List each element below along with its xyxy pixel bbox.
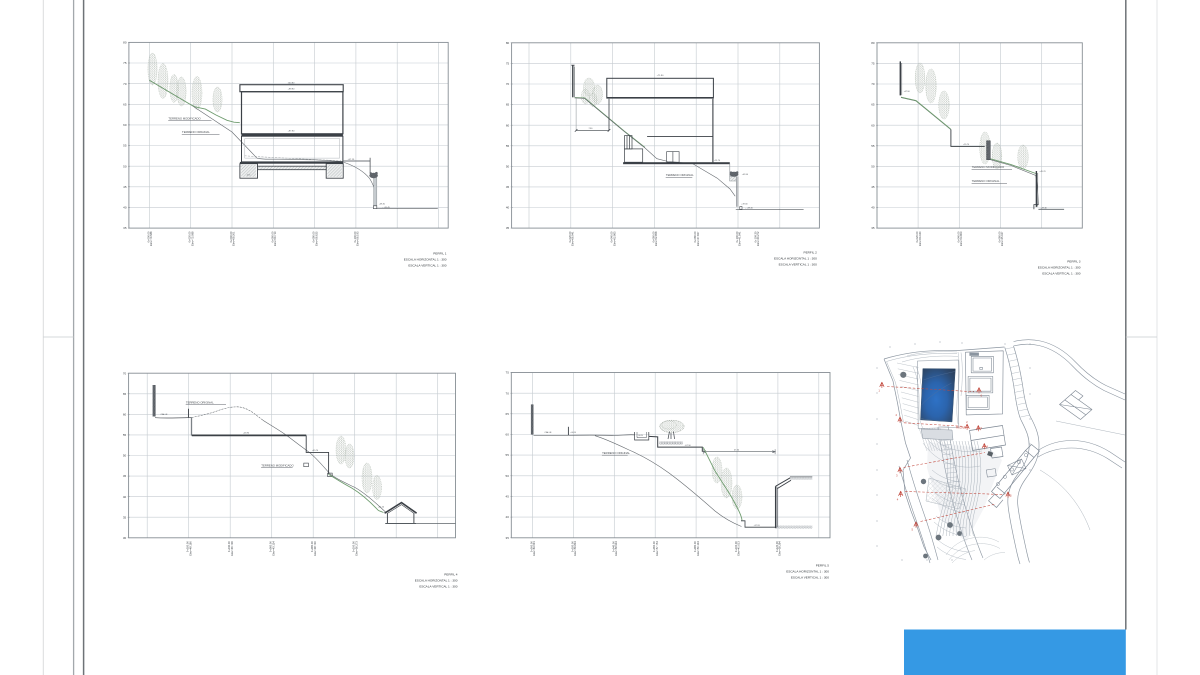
- svg-text:40: 40: [506, 206, 510, 210]
- svg-text:Elev=64.040: Elev=64.040: [918, 231, 922, 246]
- svg-text:Elev=58.934: Elev=58.934: [614, 541, 618, 556]
- svg-text:60: 60: [506, 123, 510, 127]
- svg-text:Elev=41.013: Elev=41.013: [737, 541, 741, 556]
- svg-text:ESCALA VERTICAL 1 : 300: ESCALA VERTICAL 1 : 300: [1042, 272, 1080, 276]
- svg-text:60: 60: [123, 412, 127, 416]
- svg-text:75: 75: [871, 62, 875, 66]
- svg-text:60: 60: [871, 123, 875, 127]
- svg-text:70: 70: [123, 371, 127, 375]
- svg-text:Elev=59.713: Elev=59.713: [273, 231, 277, 246]
- svg-text:70: 70: [123, 82, 127, 86]
- svg-text:45: 45: [506, 185, 510, 189]
- svg-text:50: 50: [123, 164, 127, 168]
- svg-text:Elev=41.841: Elev=41.841: [738, 231, 742, 246]
- svg-text:80: 80: [506, 41, 510, 45]
- svg-text:Elev=43.154: Elev=43.154: [271, 541, 275, 556]
- svg-text:65: 65: [871, 103, 875, 107]
- svg-text:+51.70: +51.70: [714, 160, 721, 162]
- svg-text:Elev=53.803: Elev=53.803: [959, 231, 963, 246]
- svg-text:+48.90: +48.90: [243, 433, 250, 435]
- svg-text:-58.20: -58.20: [638, 435, 643, 437]
- svg-text:55: 55: [506, 453, 510, 457]
- svg-text:TERRENO MODIFICADO: TERRENO MODIFICADO: [972, 165, 1005, 169]
- svg-text:Elev=40.272: Elev=40.272: [756, 231, 760, 246]
- svg-text:TERRENO MODIFICADO: TERRENO MODIFICADO: [168, 116, 201, 120]
- svg-text:Elev=62.863: Elev=62.863: [612, 231, 616, 246]
- svg-text:+97.90: +97.90: [288, 131, 296, 133]
- svg-text:65: 65: [123, 392, 127, 396]
- svg-text:PERFIL 5: PERFIL 5: [816, 563, 830, 567]
- svg-text:+37.93: +37.93: [754, 525, 761, 527]
- svg-text:35: 35: [123, 226, 127, 230]
- svg-text:Elev=50.134: Elev=50.134: [696, 541, 700, 556]
- svg-text:Elev=68.201: Elev=68.201: [232, 231, 236, 246]
- svg-text:CALLE: CALLE: [161, 413, 168, 416]
- svg-text:35: 35: [871, 226, 875, 230]
- svg-text:100.80: 100.80: [288, 82, 295, 84]
- svg-text:Elev=57.754: Elev=57.754: [655, 541, 659, 556]
- svg-text:+99.90: +99.90: [288, 88, 296, 90]
- svg-text:+57.50: +57.50: [685, 445, 692, 447]
- svg-text:PISCINA: PISCINA: [956, 426, 966, 429]
- svg-text:PERFIL 4: PERFIL 4: [444, 573, 458, 577]
- svg-text:TERRENO MODIFICADO: TERRENO MODIFICADO: [261, 463, 294, 467]
- svg-text:+41.20: +41.20: [378, 506, 385, 508]
- svg-text:35: 35: [123, 515, 127, 519]
- svg-text:60: 60: [506, 433, 510, 437]
- svg-text:45: 45: [506, 495, 510, 499]
- svg-text:ESCALA VERTICAL 1 : 300: ESCALA VERTICAL 1 : 300: [791, 575, 829, 579]
- svg-text:Elev=38.284: Elev=38.284: [778, 541, 782, 556]
- svg-text:Elev=56.193: Elev=56.193: [356, 231, 360, 246]
- svg-text:ESCALA HORIZONTAL 1 : 300: ESCALA HORIZONTAL 1 : 300: [774, 257, 817, 261]
- svg-text:45: 45: [123, 474, 127, 478]
- svg-text:65: 65: [506, 103, 510, 107]
- svg-text:45: 45: [123, 185, 127, 189]
- svg-text:70: 70: [506, 82, 510, 86]
- svg-text:+57.15: +57.15: [348, 159, 356, 161]
- svg-text:Elev=63.591: Elev=63.591: [532, 541, 536, 556]
- svg-text:Elev=38.730: Elev=38.730: [313, 541, 317, 556]
- svg-text:80: 80: [871, 41, 875, 45]
- svg-text:Elev=79.588: Elev=79.588: [149, 231, 153, 246]
- svg-text:70: 70: [871, 82, 875, 86]
- svg-text:+39.30: +39.30: [741, 204, 748, 206]
- svg-text:65: 65: [123, 102, 127, 106]
- svg-text:50: 50: [506, 164, 510, 168]
- svg-text:CALLE: CALLE: [545, 431, 552, 434]
- svg-text:40: 40: [123, 206, 127, 210]
- svg-text:+45.70: +45.70: [312, 450, 319, 452]
- svg-text:50: 50: [123, 454, 127, 458]
- svg-text:80: 80: [123, 41, 127, 45]
- svg-text:TERRENO ORIGINAL: TERRENO ORIGINAL: [182, 130, 210, 134]
- svg-text:50: 50: [506, 474, 510, 478]
- svg-text:Elev=59.834: Elev=59.834: [573, 541, 577, 556]
- svg-text:40: 40: [871, 206, 875, 210]
- svg-text:30: 30: [123, 536, 127, 540]
- svg-text:+55.70: +55.70: [963, 144, 970, 146]
- svg-text:ESCALA VERTICAL 1 : 300: ESCALA VERTICAL 1 : 300: [419, 585, 457, 589]
- svg-text:+39.30: +39.30: [379, 203, 386, 205]
- svg-text:Elev=48.160: Elev=48.160: [188, 541, 192, 556]
- svg-text:55: 55: [506, 144, 510, 148]
- svg-text:Elev=46.736: Elev=46.736: [230, 541, 234, 556]
- svg-text:70: 70: [506, 391, 510, 395]
- svg-text:50: 50: [871, 164, 875, 168]
- svg-text:4.75: 4.75: [247, 174, 251, 176]
- svg-text:+71.90: +71.90: [657, 75, 665, 77]
- svg-text:60: 60: [123, 123, 127, 127]
- svg-text:75: 75: [506, 371, 510, 375]
- svg-text:PERFIL 1: PERFIL 1: [433, 252, 447, 256]
- svg-text:ESCALA HORIZONTAL 1 : 300: ESCALA HORIZONTAL 1 : 300: [1038, 266, 1081, 270]
- svg-text:Elev=36.273: Elev=36.273: [354, 541, 358, 556]
- svg-text:ESCALA VERTICAL 1 : 300: ESCALA VERTICAL 1 : 300: [408, 264, 446, 268]
- svg-text:40: 40: [123, 495, 127, 499]
- svg-text:PERFIL 2: PERFIL 2: [804, 251, 818, 255]
- svg-text:ESCALA HORIZONTAL 1 : 300: ESCALA HORIZONTAL 1 : 300: [415, 579, 458, 583]
- svg-text:+60.10: +60.10: [570, 432, 576, 434]
- svg-text:40: 40: [506, 515, 510, 519]
- svg-text:55: 55: [123, 433, 127, 437]
- svg-text:+49.90: +49.90: [742, 174, 749, 176]
- svg-text:Elev=45.027: Elev=45.027: [1000, 231, 1004, 246]
- svg-text:TERRENO ORIGINAL: TERRENO ORIGINAL: [972, 179, 1000, 183]
- svg-text:47.30: 47.30: [734, 449, 740, 451]
- svg-text:+67.90: +67.90: [904, 91, 911, 93]
- svg-text:35: 35: [506, 536, 510, 540]
- svg-text:+49.70: +49.70: [1039, 171, 1046, 173]
- svg-text:TERRENO ORIGINAL: TERRENO ORIGINAL: [186, 400, 214, 404]
- svg-text:75: 75: [506, 62, 510, 66]
- svg-text:55: 55: [123, 144, 127, 148]
- svg-text:55: 55: [871, 144, 875, 148]
- svg-text:Elev=66.941: Elev=66.941: [571, 231, 575, 246]
- svg-text:Elev=75.088: Elev=75.088: [190, 231, 194, 246]
- svg-text:65: 65: [506, 412, 510, 416]
- svg-text:TERRENO ORIGINAL: TERRENO ORIGINAL: [666, 173, 694, 177]
- svg-text:35: 35: [506, 226, 510, 230]
- svg-text:Elev=52.858: Elev=52.858: [654, 231, 658, 246]
- svg-text:45: 45: [871, 185, 875, 189]
- svg-text:ESCALA HORIZONTAL 1 : 300: ESCALA HORIZONTAL 1 : 300: [786, 569, 829, 573]
- svg-text:Elev=47.827: Elev=47.827: [696, 231, 700, 246]
- svg-text:ESCALA HORIZONTAL 1 : 300: ESCALA HORIZONTAL 1 : 300: [404, 258, 447, 262]
- svg-text:Elev=56.625: Elev=56.625: [314, 231, 318, 246]
- svg-text:PERFIL 3: PERFIL 3: [1067, 260, 1081, 264]
- svg-text:TERRENO ORIGINAL: TERRENO ORIGINAL: [602, 451, 630, 455]
- svg-text:75: 75: [123, 61, 127, 65]
- svg-text:ESCALA VERTICAL 1 : 300: ESCALA VERTICAL 1 : 300: [779, 263, 817, 267]
